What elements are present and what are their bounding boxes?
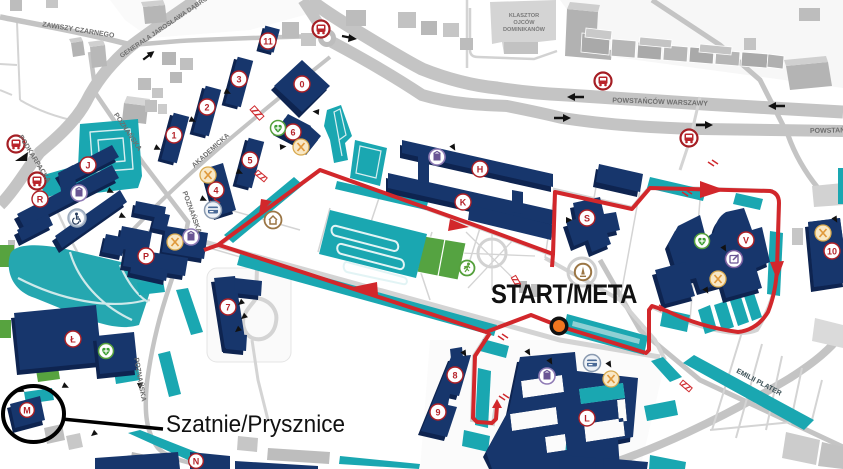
svg-text:11: 11: [263, 37, 273, 47]
svg-text:5: 5: [247, 156, 252, 166]
svg-text:N: N: [193, 457, 200, 467]
svg-text:8: 8: [452, 371, 457, 381]
svg-text:1: 1: [171, 131, 176, 141]
svg-text:R: R: [37, 195, 44, 205]
svg-text:K: K: [460, 198, 467, 208]
svg-text:DOMINIKANÓW: DOMINIKANÓW: [503, 25, 546, 33]
svg-text:P: P: [143, 252, 149, 262]
svg-text:10: 10: [827, 247, 837, 257]
svg-text:2: 2: [204, 103, 209, 113]
svg-text:L: L: [584, 414, 590, 424]
svg-text:KLASZTOR: KLASZTOR: [509, 13, 539, 19]
svg-text:J: J: [85, 161, 90, 171]
svg-text:S: S: [584, 214, 590, 224]
svg-text:4: 4: [213, 186, 218, 196]
svg-text:3: 3: [236, 75, 241, 85]
svg-text:9: 9: [435, 408, 440, 418]
svg-text:H: H: [477, 165, 484, 175]
svg-text:Ł: Ł: [70, 335, 76, 345]
svg-text:Szatnie/Prysznice: Szatnie/Prysznice: [166, 411, 345, 438]
svg-text:OJCÓW: OJCÓW: [513, 18, 535, 26]
svg-text:6: 6: [290, 128, 295, 138]
svg-text:M: M: [23, 406, 31, 416]
svg-text:0: 0: [299, 80, 304, 90]
svg-text:START/META: START/META: [491, 279, 637, 309]
svg-text:V: V: [743, 236, 749, 246]
svg-text:7: 7: [225, 303, 230, 313]
